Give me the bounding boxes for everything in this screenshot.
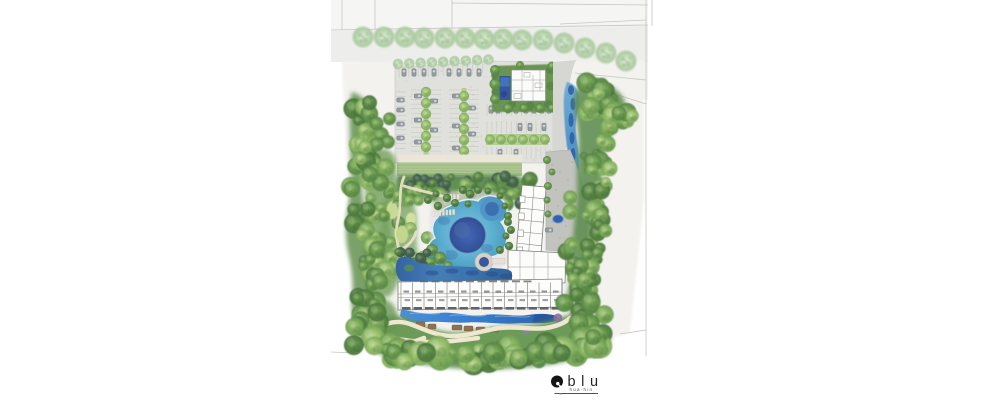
svg-text:hua-hin: hua-hin xyxy=(570,387,594,392)
